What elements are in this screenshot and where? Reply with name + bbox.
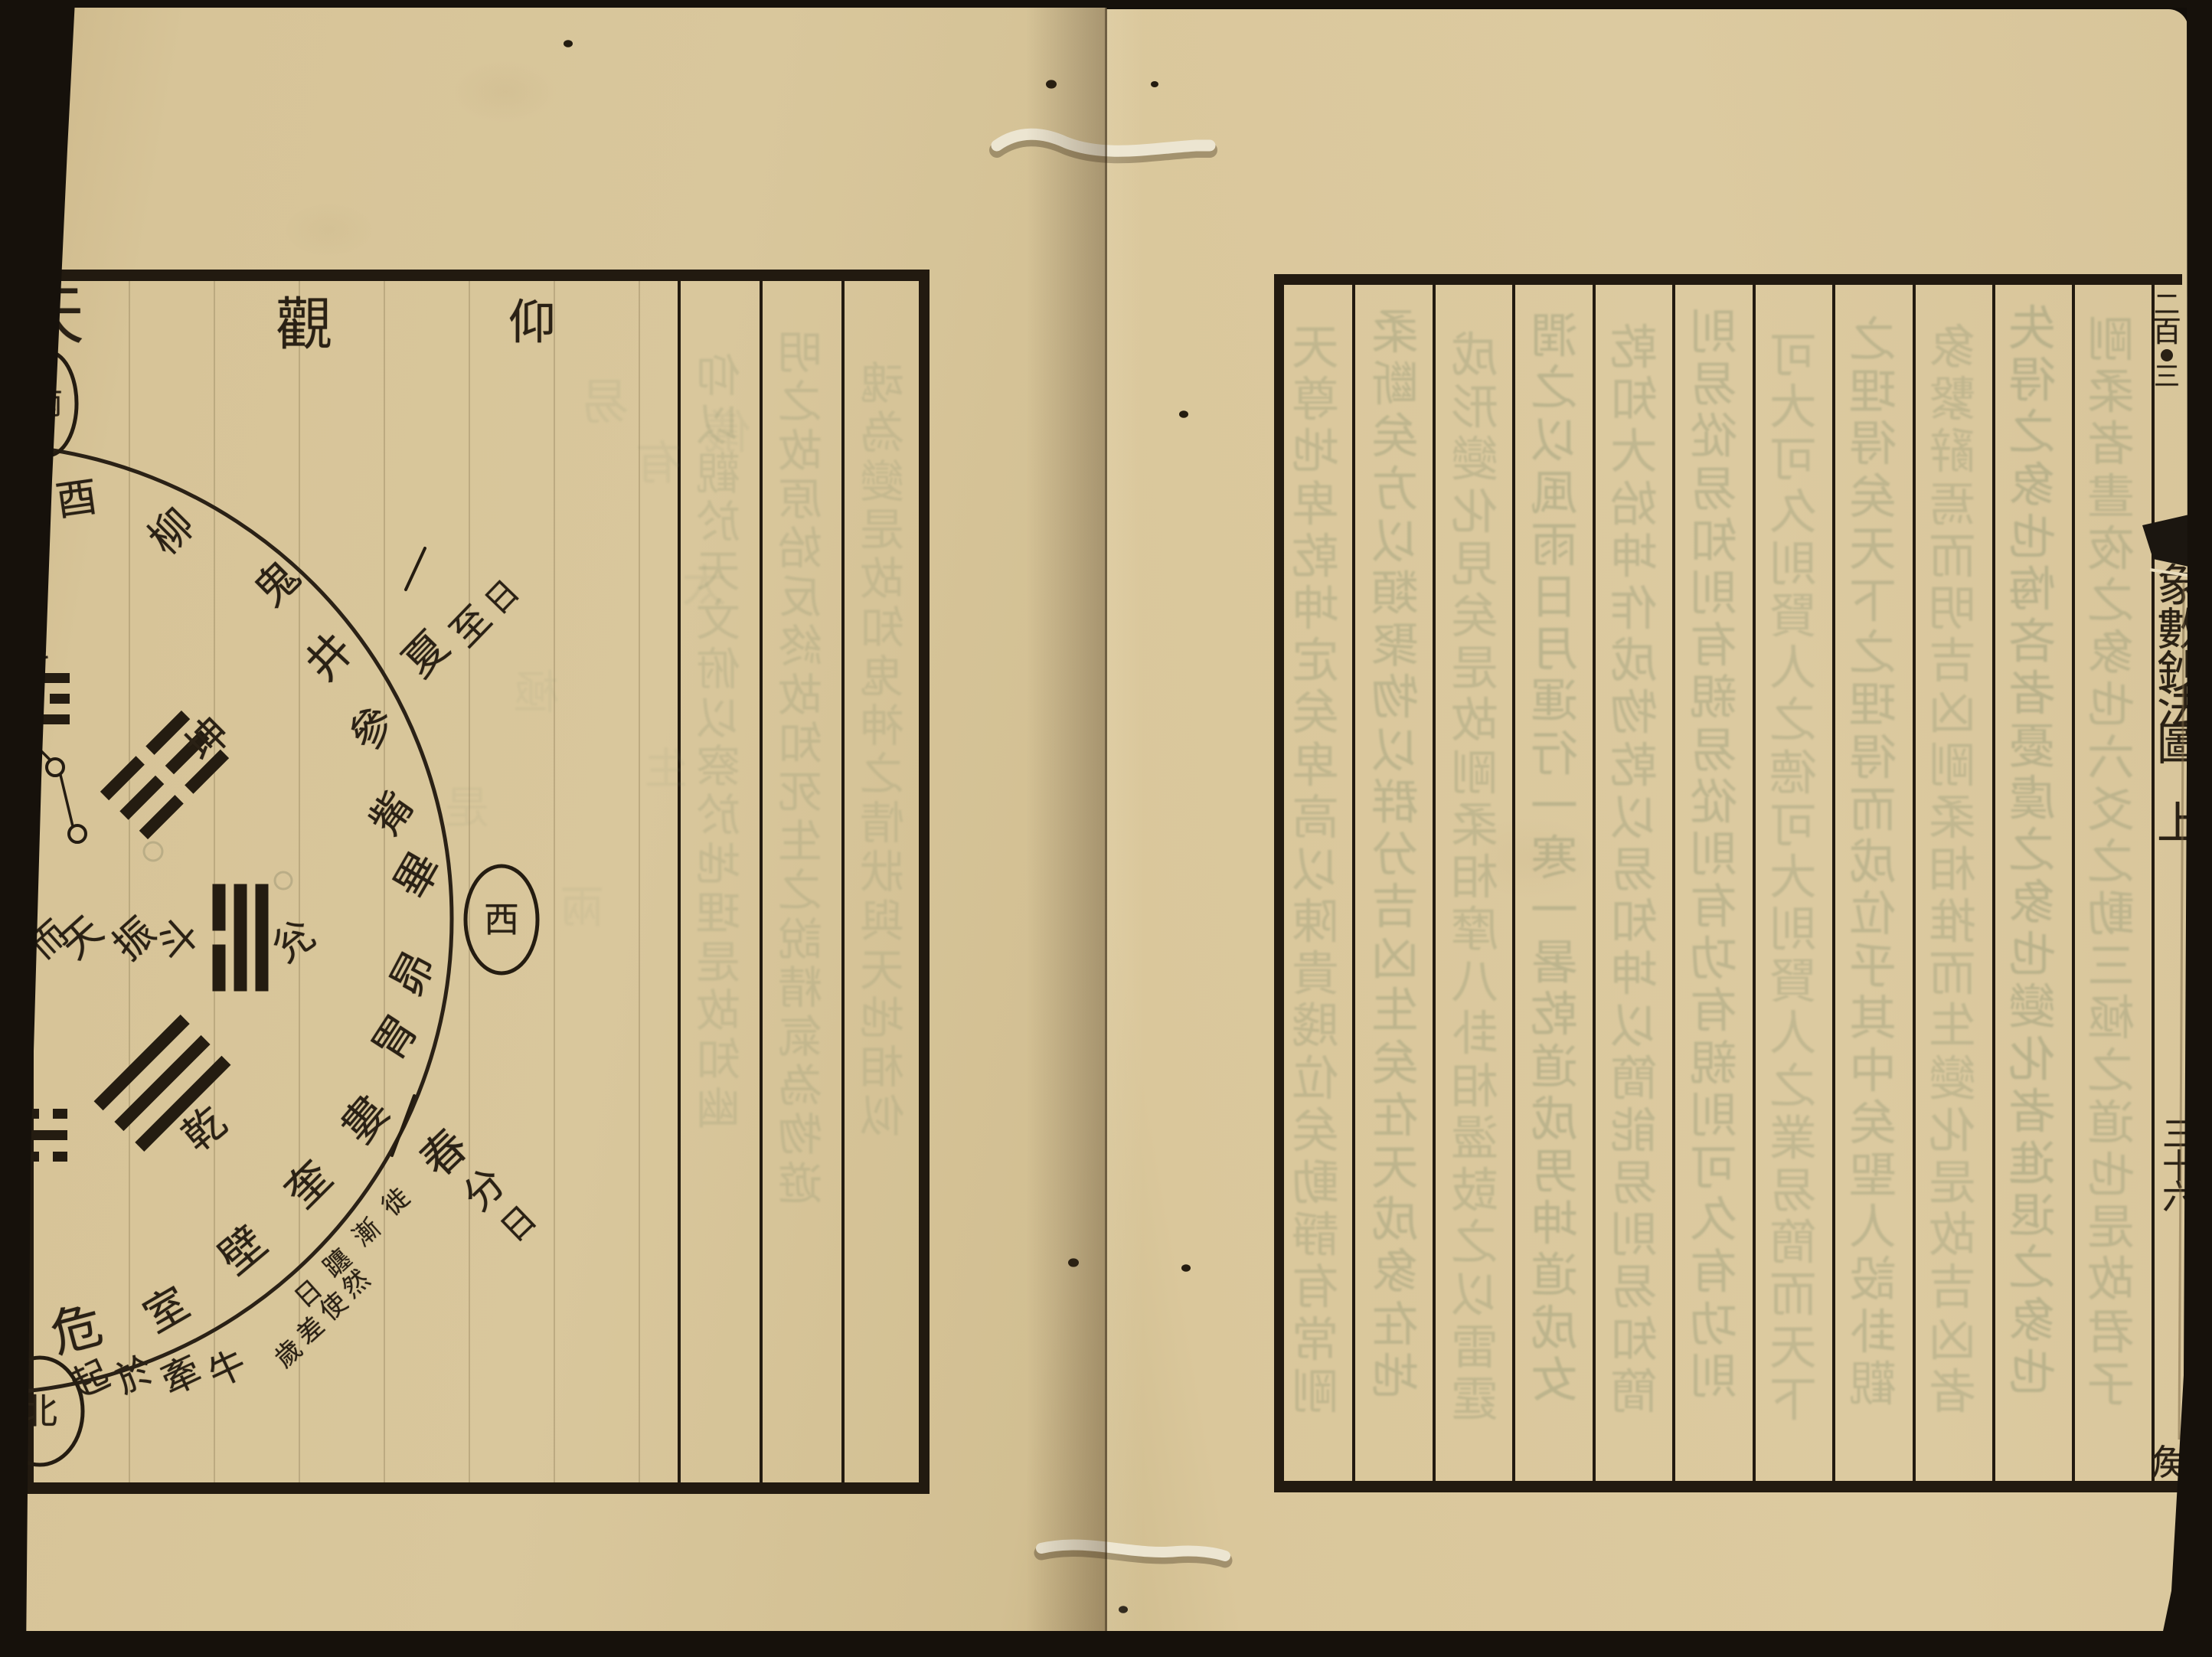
ghost-star-0 (144, 842, 162, 861)
scan-edge-top (0, 0, 2212, 8)
folio-dot (2161, 349, 2173, 361)
book-scan: 仰觀天南西北酉柳鬼井參觜畢昴胃婁奎壁室危夏至日春分日斗振天而日躔漸徙歲差使然起於… (0, 0, 2212, 1657)
direction-circle-西 (466, 866, 537, 973)
solar-term-tick-0 (406, 548, 425, 590)
star-link-0 (60, 775, 73, 826)
paper-hole-0 (564, 40, 573, 47)
star-circle-0 (47, 759, 64, 776)
celestial-rim-arc (0, 444, 452, 1394)
scan-edge-bottom (0, 1631, 2212, 1657)
paper-hole-3 (1179, 410, 1188, 418)
ghost-star-1 (275, 872, 292, 889)
paper-hole-5 (1181, 1264, 1191, 1272)
center-fold-light (1107, 9, 1144, 1631)
solar-term-tick-1 (392, 1096, 414, 1155)
center-fold-shadow (1026, 6, 1107, 1632)
paper-hole-2 (1151, 81, 1158, 87)
page-edge-line (2179, 582, 2184, 1440)
star-circle-1 (69, 825, 86, 842)
page-edge-highlight (2150, 570, 2191, 576)
